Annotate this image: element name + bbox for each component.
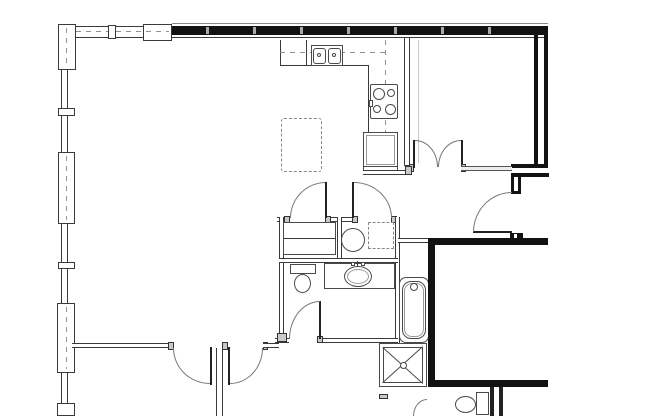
void-wall-left [428, 238, 435, 387]
lower-toilet-tank [476, 392, 489, 415]
window-line [67, 373, 68, 403]
window-mullion [108, 25, 116, 39]
bedroom-door-arc-left [415, 140, 438, 167]
lower-door-arc-fragment [413, 399, 427, 416]
window-line [61, 224, 62, 262]
wall-dash [206, 27, 209, 34]
pier-centerline [66, 307, 67, 369]
hall-partition-wall [216, 348, 223, 416]
linen-shelf-line [283, 238, 336, 239]
refrigerator-inner [366, 135, 395, 165]
void-wall-bottom [428, 380, 548, 387]
pier-centerline [66, 28, 67, 68]
wall-dash [441, 27, 444, 34]
chase-drain [400, 362, 407, 369]
burner [385, 104, 396, 115]
closet-door-arc-right [354, 182, 392, 218]
wall-jog-stub-cap [511, 191, 521, 194]
toilet-bowl [294, 274, 311, 293]
wall-jog [511, 173, 549, 177]
wall-pier [57, 403, 75, 416]
wall-dash [347, 27, 350, 34]
sink-drain [332, 53, 336, 57]
entry-door-swing-arc [473, 192, 512, 232]
hall-door-arc-left [173, 348, 210, 384]
lower-wall-bar [490, 387, 494, 416]
burner [387, 89, 395, 97]
hall-door-leaf-left [210, 347, 212, 385]
bedroom-door-arc-right [438, 140, 461, 167]
wall-pier [143, 24, 172, 41]
exterior-wall-top-inner-face [172, 37, 548, 38]
window-line [61, 373, 62, 403]
window-line [61, 70, 62, 108]
bedroom-sill-wall [461, 166, 512, 171]
window-mullion [58, 262, 75, 269]
bedroom-left-wall [404, 38, 405, 172]
pier-centerline [66, 156, 67, 220]
pier-centerline [146, 31, 169, 32]
toilet-tank [290, 264, 316, 274]
window-line [67, 116, 68, 152]
hall-wall [72, 343, 173, 348]
washer [341, 228, 365, 252]
lower-wall-tick [379, 394, 388, 399]
hall-wall [263, 343, 279, 348]
floor-plan [0, 0, 652, 416]
dryer [368, 222, 394, 249]
void-wall-top [428, 238, 548, 245]
exterior-wall-right [534, 26, 538, 168]
wall-dash [488, 27, 491, 34]
exterior-wall-top [172, 26, 548, 35]
faucet-handle [351, 262, 355, 266]
closet-door-leaf-left [325, 182, 327, 218]
exterior-wall-top-outline [172, 23, 548, 24]
window-line [67, 269, 68, 303]
faucet-handle [361, 262, 365, 266]
tub-alcove-wall [398, 238, 428, 243]
window-line [67, 70, 68, 108]
door-jamb [405, 166, 412, 175]
window-line [67, 224, 68, 262]
window-line [61, 116, 62, 152]
kitchen-island [281, 118, 322, 172]
wall-dash [300, 27, 303, 34]
sink-drain [317, 53, 321, 57]
closet-door-arc-left [290, 182, 326, 218]
bathroom-door-arc [289, 301, 320, 339]
wall-dash [394, 27, 397, 34]
cooktop-knob [369, 100, 373, 107]
window-line [61, 269, 62, 303]
bathtub-inner2 [404, 283, 424, 337]
burner [373, 88, 385, 100]
window-mullion [58, 108, 75, 116]
faucet-spout [357, 261, 358, 267]
lower-wall-bar [499, 387, 503, 416]
lower-toilet-bowl [455, 396, 476, 413]
bedroom-left-wall [409, 38, 410, 172]
vanity-sink-inner [347, 269, 369, 284]
door-jamb [277, 333, 287, 342]
wall-dash [253, 27, 256, 34]
wall-jog [511, 164, 548, 168]
exterior-wall-right [544, 26, 548, 168]
wall-pier [58, 24, 76, 70]
burner [373, 105, 381, 113]
hall-door-arc-right [230, 348, 263, 384]
tub-faucet [410, 283, 418, 291]
